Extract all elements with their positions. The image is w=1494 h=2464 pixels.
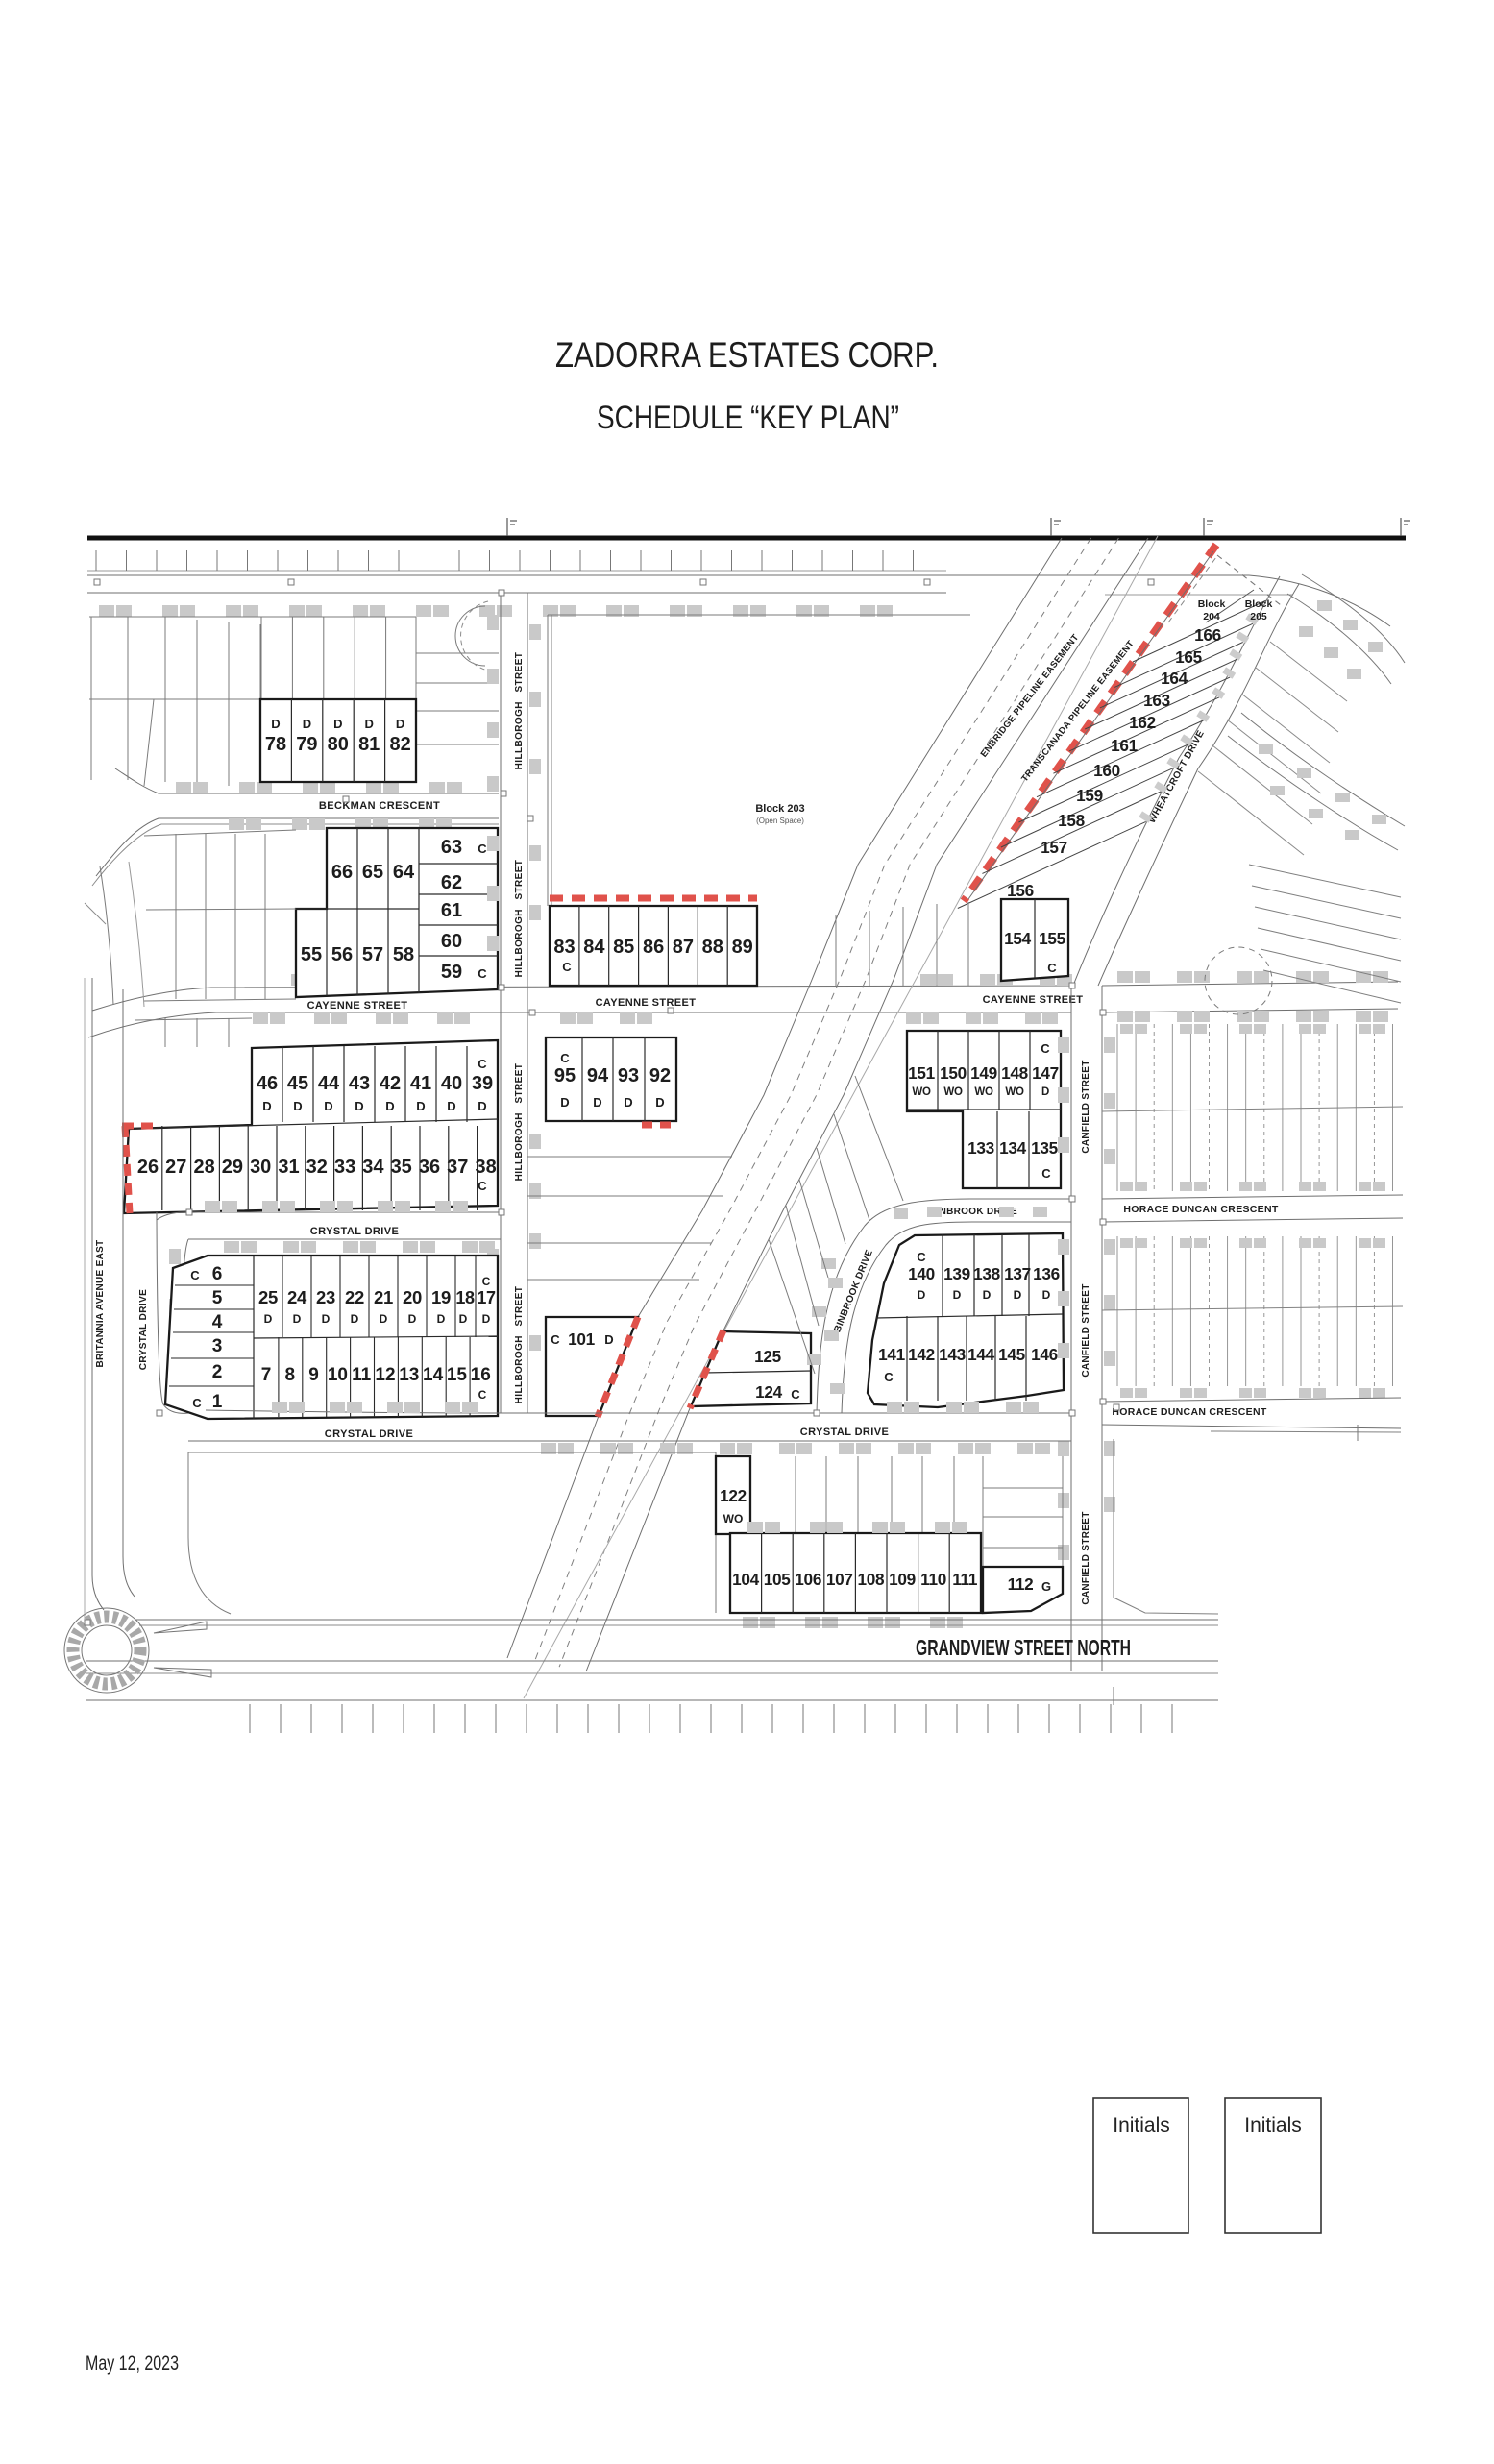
svg-text:110: 110 [920, 1570, 946, 1589]
svg-text:D: D [655, 1095, 664, 1110]
svg-text:112: 112 [1008, 1574, 1034, 1594]
svg-text:133: 133 [967, 1138, 994, 1158]
svg-text:D: D [322, 1312, 331, 1326]
svg-text:CAYENNE STREET: CAYENNE STREET [983, 994, 1084, 1006]
svg-text:36: 36 [419, 1157, 440, 1178]
svg-text:C: C [1047, 961, 1057, 975]
svg-text:WO: WO [723, 1512, 744, 1525]
svg-text:11: 11 [352, 1365, 372, 1385]
svg-text:WO: WO [974, 1086, 993, 1098]
svg-text:C: C [482, 1275, 491, 1288]
svg-text:39: 39 [472, 1073, 493, 1094]
svg-text:79: 79 [296, 734, 317, 755]
svg-text:109: 109 [889, 1570, 916, 1589]
svg-text:1: 1 [212, 1392, 223, 1412]
svg-text:80: 80 [328, 734, 349, 755]
svg-text:165: 165 [1175, 647, 1203, 667]
svg-text:C: C [1041, 1166, 1051, 1181]
svg-text:28: 28 [193, 1157, 214, 1178]
svg-text:D: D [416, 1099, 425, 1113]
svg-text:107: 107 [826, 1570, 853, 1589]
svg-text:7: 7 [261, 1365, 272, 1385]
svg-text:3: 3 [212, 1336, 223, 1356]
svg-text:46: 46 [257, 1073, 278, 1094]
svg-text:30: 30 [250, 1157, 271, 1178]
svg-text:159: 159 [1076, 786, 1103, 805]
svg-text:HILLBOROGH STREET: HILLBOROGH STREET [514, 1063, 525, 1182]
svg-text:C: C [791, 1387, 800, 1402]
svg-text:108: 108 [858, 1570, 886, 1589]
svg-text:95: 95 [554, 1065, 576, 1086]
svg-text:C: C [478, 966, 487, 981]
svg-text:25: 25 [258, 1287, 278, 1307]
svg-text:CRYSTAL DRIVE: CRYSTAL DRIVE [310, 1226, 399, 1237]
svg-text:148: 148 [1001, 1063, 1029, 1083]
svg-text:18: 18 [455, 1288, 475, 1307]
svg-text:20: 20 [403, 1287, 422, 1307]
svg-text:C: C [192, 1396, 202, 1410]
svg-text:21: 21 [374, 1287, 393, 1307]
svg-text:58: 58 [393, 944, 414, 965]
svg-text:D: D [1014, 1288, 1022, 1302]
svg-text:D: D [355, 1099, 363, 1113]
svg-text:D: D [385, 1099, 394, 1113]
svg-text:SCHEDULE “KEY PLAN”: SCHEDULE “KEY PLAN” [597, 400, 899, 436]
svg-text:147: 147 [1032, 1063, 1059, 1083]
svg-text:44: 44 [318, 1073, 340, 1094]
svg-text:CANFIELD STREET: CANFIELD STREET [1081, 1060, 1091, 1153]
svg-text:C: C [884, 1370, 894, 1384]
svg-text:D: D [380, 1312, 388, 1326]
svg-text:D: D [437, 1312, 446, 1326]
svg-text:ZADORRA ESTATES CORP.: ZADORRA ESTATES CORP. [555, 335, 939, 375]
svg-text:D: D [447, 1099, 455, 1113]
svg-text:C: C [1041, 1041, 1050, 1056]
svg-text:D: D [293, 1312, 302, 1326]
svg-text:HILLBOROGH STREET: HILLBOROGH STREET [514, 652, 525, 770]
svg-text:92: 92 [649, 1065, 671, 1086]
svg-text:88: 88 [702, 937, 723, 958]
svg-text:D: D [560, 1095, 569, 1110]
svg-text:CANFIELD STREET: CANFIELD STREET [1081, 1511, 1091, 1604]
svg-text:41: 41 [410, 1073, 431, 1094]
svg-text:59: 59 [441, 962, 462, 983]
svg-text:140: 140 [908, 1264, 935, 1283]
svg-text:157: 157 [1041, 838, 1067, 857]
svg-text:32: 32 [306, 1157, 328, 1178]
svg-text:CAYENNE STREET: CAYENNE STREET [596, 997, 697, 1009]
svg-text:Block: Block [1198, 598, 1226, 610]
svg-text:D: D [593, 1095, 601, 1110]
svg-text:D: D [459, 1312, 468, 1326]
svg-text:87: 87 [673, 937, 694, 958]
svg-text:161: 161 [1111, 736, 1139, 755]
svg-text:158: 158 [1058, 811, 1086, 830]
svg-text:84: 84 [583, 937, 605, 958]
svg-text:37: 37 [447, 1157, 468, 1178]
svg-text:85: 85 [613, 937, 634, 958]
svg-text:6: 6 [212, 1264, 223, 1284]
svg-text:D: D [396, 717, 404, 731]
svg-text:13: 13 [399, 1365, 419, 1385]
svg-text:D: D [365, 717, 374, 731]
svg-text:43: 43 [349, 1073, 370, 1094]
svg-text:82: 82 [389, 734, 410, 755]
svg-text:10: 10 [328, 1365, 348, 1385]
svg-text:139: 139 [943, 1264, 970, 1283]
svg-text:C: C [478, 842, 487, 856]
svg-text:151: 151 [908, 1063, 936, 1083]
svg-text:124: 124 [755, 1382, 783, 1402]
svg-text:29: 29 [222, 1157, 243, 1178]
svg-text:CRYSTAL DRIVE: CRYSTAL DRIVE [138, 1289, 149, 1370]
svg-text:42: 42 [380, 1073, 401, 1094]
svg-text:C: C [560, 1051, 570, 1065]
svg-text:57: 57 [362, 944, 383, 965]
svg-text:155: 155 [1039, 929, 1066, 948]
svg-text:138: 138 [973, 1264, 1001, 1283]
svg-text:Block: Block [1245, 598, 1273, 610]
svg-text:WO: WO [943, 1086, 963, 1098]
svg-text:D: D [333, 717, 342, 731]
svg-text:D: D [624, 1095, 632, 1110]
svg-text:19: 19 [431, 1287, 451, 1307]
svg-text:C: C [562, 960, 572, 974]
svg-text:164: 164 [1161, 669, 1188, 688]
svg-text:D: D [1042, 1288, 1051, 1302]
svg-text:205: 205 [1250, 611, 1267, 622]
svg-text:143: 143 [939, 1345, 966, 1364]
svg-text:204: 204 [1203, 611, 1220, 622]
svg-text:12: 12 [375, 1365, 395, 1385]
svg-text:D: D [262, 1099, 271, 1113]
svg-text:D: D [983, 1288, 992, 1302]
svg-text:64: 64 [393, 862, 415, 883]
svg-text:14: 14 [423, 1365, 444, 1385]
svg-text:WO: WO [1005, 1086, 1024, 1098]
svg-text:65: 65 [362, 862, 383, 883]
svg-text:62: 62 [441, 872, 462, 893]
svg-text:HILLBOROGH STREET: HILLBOROGH STREET [514, 860, 525, 978]
svg-text:26: 26 [137, 1157, 159, 1178]
svg-text:27: 27 [165, 1157, 186, 1178]
svg-text:166: 166 [1194, 625, 1221, 645]
svg-text:35: 35 [391, 1157, 412, 1178]
svg-text:60: 60 [441, 931, 462, 952]
svg-text:CRYSTAL DRIVE: CRYSTAL DRIVE [800, 1427, 889, 1438]
svg-text:C: C [478, 1388, 487, 1402]
svg-text:45: 45 [287, 1073, 308, 1094]
svg-text:17: 17 [477, 1288, 496, 1307]
svg-text:22: 22 [345, 1287, 364, 1307]
svg-text:81: 81 [358, 734, 380, 755]
svg-text:23: 23 [316, 1287, 335, 1307]
svg-text:135: 135 [1031, 1138, 1059, 1158]
svg-text:May 12, 2023: May 12, 2023 [86, 2353, 179, 2375]
svg-text:34: 34 [362, 1157, 384, 1178]
svg-text:16: 16 [471, 1365, 491, 1385]
svg-text:162: 162 [1129, 713, 1156, 732]
svg-text:142: 142 [908, 1345, 935, 1364]
svg-text:105: 105 [764, 1570, 792, 1589]
svg-text:111: 111 [952, 1570, 978, 1589]
svg-text:D: D [408, 1312, 417, 1326]
svg-text:122: 122 [720, 1486, 747, 1505]
svg-text:78: 78 [265, 734, 286, 755]
svg-text:160: 160 [1093, 761, 1120, 780]
svg-text:Initials: Initials [1113, 2114, 1170, 2136]
svg-text:134: 134 [999, 1138, 1027, 1158]
svg-text:9: 9 [308, 1365, 319, 1385]
svg-text:D: D [264, 1312, 273, 1326]
svg-text:101: 101 [568, 1330, 596, 1349]
svg-text:4: 4 [212, 1312, 223, 1332]
svg-text:94: 94 [587, 1065, 609, 1086]
svg-text:D: D [482, 1312, 491, 1326]
svg-text:66: 66 [331, 862, 353, 883]
svg-text:141: 141 [878, 1345, 906, 1364]
svg-text:144: 144 [967, 1345, 995, 1364]
svg-text:83: 83 [553, 937, 575, 958]
svg-text:89: 89 [732, 937, 753, 958]
svg-text:38: 38 [475, 1157, 496, 1178]
svg-text:HILLBOROGH STREET: HILLBOROGH STREET [514, 1286, 525, 1404]
svg-text:106: 106 [795, 1570, 821, 1589]
svg-text:D: D [271, 717, 280, 731]
svg-text:CAYENNE STREET: CAYENNE STREET [307, 1000, 408, 1012]
svg-text:D: D [953, 1288, 962, 1302]
svg-text:56: 56 [331, 944, 353, 965]
svg-text:C: C [917, 1250, 926, 1264]
svg-text:C: C [478, 1057, 487, 1071]
svg-text:61: 61 [441, 900, 462, 921]
svg-text:163: 163 [1143, 691, 1170, 710]
svg-text:5: 5 [212, 1288, 223, 1308]
svg-text:GRANDVIEW STREET NORTH: GRANDVIEW STREET NORTH [916, 1635, 1131, 1660]
svg-text:136: 136 [1033, 1264, 1060, 1283]
svg-text:156: 156 [1007, 881, 1034, 900]
svg-text:D: D [478, 1099, 486, 1113]
svg-text:WO: WO [912, 1086, 931, 1098]
svg-text:145: 145 [998, 1345, 1026, 1364]
svg-text:8: 8 [285, 1365, 296, 1385]
svg-text:33: 33 [334, 1157, 355, 1178]
svg-text:125: 125 [754, 1347, 782, 1366]
svg-text:BRITANNIA AVENUE EAST: BRITANNIA AVENUE EAST [95, 1240, 106, 1368]
svg-text:D: D [303, 717, 311, 731]
svg-text:C: C [190, 1268, 200, 1282]
svg-text:104: 104 [732, 1570, 760, 1589]
svg-text:40: 40 [441, 1073, 462, 1094]
svg-text:BECKMAN CRESCENT: BECKMAN CRESCENT [319, 800, 440, 812]
svg-text:D: D [293, 1099, 302, 1113]
svg-text:(Open Space): (Open Space) [756, 817, 804, 825]
svg-text:55: 55 [301, 944, 322, 965]
svg-text:149: 149 [970, 1063, 997, 1083]
svg-text:CRYSTAL DRIVE: CRYSTAL DRIVE [325, 1428, 413, 1440]
svg-text:146: 146 [1031, 1345, 1058, 1364]
svg-text:154: 154 [1004, 929, 1032, 948]
svg-text:HORACE DUNCAN CRESCENT: HORACE DUNCAN CRESCENT [1123, 1204, 1278, 1215]
svg-text:D: D [351, 1312, 359, 1326]
svg-text:150: 150 [940, 1063, 967, 1083]
svg-text:93: 93 [618, 1065, 639, 1086]
svg-text:Initials: Initials [1244, 2114, 1302, 2136]
svg-text:CANFIELD STREET: CANFIELD STREET [1081, 1283, 1091, 1377]
svg-text:C: C [478, 1179, 487, 1193]
svg-text:31: 31 [278, 1157, 299, 1178]
svg-text:D: D [1041, 1086, 1049, 1098]
svg-text:24: 24 [287, 1287, 307, 1307]
svg-text:HORACE DUNCAN CRESCENT: HORACE DUNCAN CRESCENT [1112, 1406, 1266, 1418]
svg-text:D: D [918, 1288, 926, 1302]
svg-text:86: 86 [643, 937, 664, 958]
svg-text:137: 137 [1004, 1264, 1031, 1283]
svg-text:G: G [1041, 1579, 1051, 1594]
svg-text:63: 63 [441, 837, 462, 858]
svg-text:C: C [551, 1332, 560, 1347]
svg-text:Block 203: Block 203 [755, 803, 804, 815]
svg-text:D: D [604, 1332, 613, 1347]
svg-text:15: 15 [447, 1365, 468, 1385]
svg-text:2: 2 [212, 1362, 223, 1382]
svg-text:D: D [324, 1099, 332, 1113]
